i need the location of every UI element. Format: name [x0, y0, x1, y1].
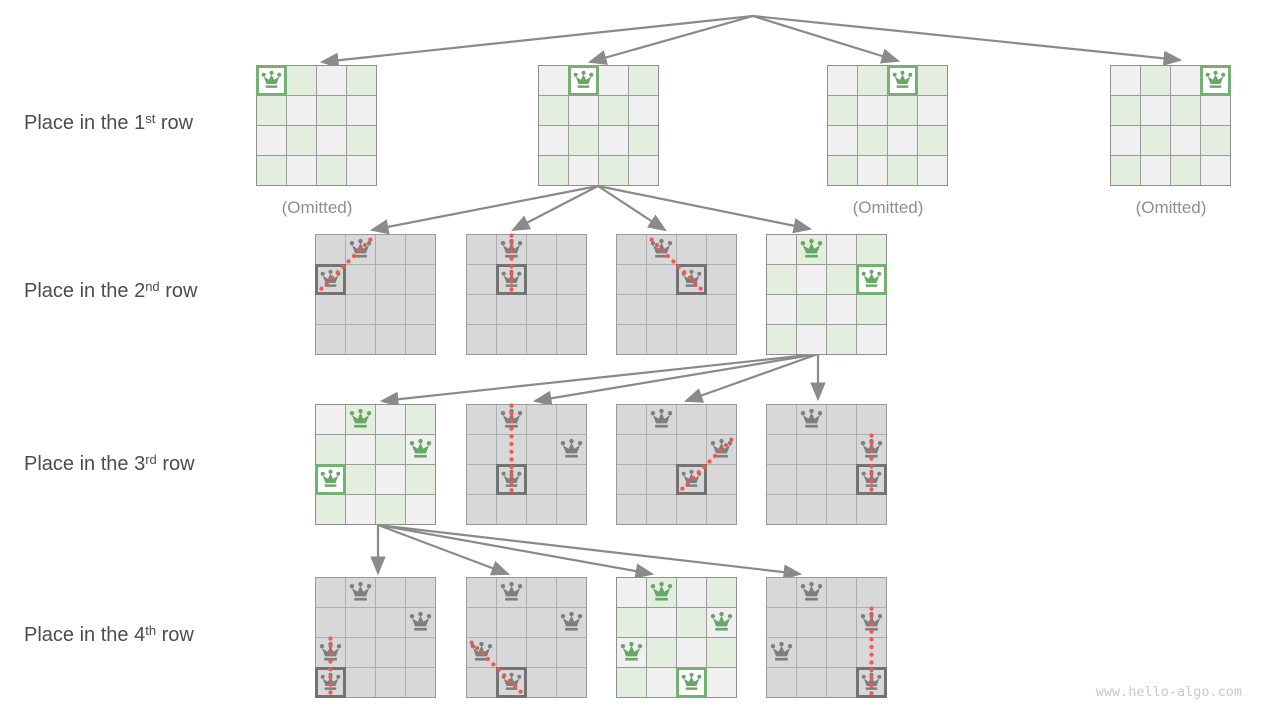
board-cell: [858, 66, 887, 95]
board-cell: [287, 96, 316, 125]
queen-placed: [346, 405, 375, 434]
board-cell: [828, 96, 857, 125]
board-cell: [527, 608, 556, 637]
board-cell: [406, 638, 435, 667]
board-cell: [287, 156, 316, 185]
row-label-3: Place in the 3rd row: [24, 453, 254, 476]
board-cell: [376, 325, 405, 354]
board-cell: [647, 668, 676, 697]
board-cell: [467, 435, 496, 464]
row-label-text: row: [160, 280, 198, 302]
chess-queen-icon: [320, 469, 341, 490]
board-cell: [1201, 126, 1230, 155]
board-cell: [827, 495, 856, 524]
omitted-label-2: (Omitted): [827, 198, 949, 218]
row-label-1: Place in the 1st row: [24, 112, 254, 135]
chess-queen-icon: [800, 408, 823, 431]
board-cell: [677, 578, 706, 607]
board-cell: [677, 638, 706, 667]
board-cell: [707, 465, 736, 494]
chess-queen-icon: [860, 611, 883, 634]
board-cell: [539, 126, 568, 155]
board-cell: [707, 495, 736, 524]
chess-queen-icon: [349, 238, 372, 261]
chess-queen-icon: [800, 238, 823, 261]
chess-queen-icon: [681, 672, 702, 693]
queen-placed: [797, 235, 826, 264]
board-cell: [257, 96, 286, 125]
board-cell: [629, 66, 658, 95]
chess-queen-icon: [650, 408, 673, 431]
board-cell: [467, 265, 496, 294]
board-level4-board1: [315, 577, 436, 698]
board-cell: [857, 495, 886, 524]
queen-placed: [497, 405, 526, 434]
board-cell: [539, 96, 568, 125]
board-cell: [918, 126, 947, 155]
board-level1-board2: [538, 65, 659, 186]
board-cell: [527, 405, 556, 434]
board-cell: [827, 668, 856, 697]
board-cell: [1201, 96, 1230, 125]
chess-queen-icon: [650, 238, 673, 261]
queen-placed: [467, 638, 496, 667]
board-cell: [677, 325, 706, 354]
board-cell: [888, 156, 917, 185]
board-cell: [617, 495, 646, 524]
board-cell: [707, 295, 736, 324]
board-cell: [827, 608, 856, 637]
queen-placed: [647, 235, 676, 264]
board-cell: [617, 608, 646, 637]
board-cell: [827, 265, 856, 294]
board-cell: [1171, 156, 1200, 185]
board-cell: [257, 126, 286, 155]
board-cell: [1171, 96, 1200, 125]
chess-queen-icon: [770, 641, 793, 664]
board-cell: [557, 295, 586, 324]
board-cell: [1111, 126, 1140, 155]
board-cell: [316, 608, 345, 637]
chess-queen-icon: [349, 408, 372, 431]
row-label-text: row: [157, 453, 195, 475]
board-cell: [527, 325, 556, 354]
chess-queen-icon: [500, 238, 523, 261]
board-cell: [497, 638, 526, 667]
board-cell: [406, 405, 435, 434]
board-level1-board3: [827, 65, 948, 186]
board-cell: [406, 265, 435, 294]
queen-placed: [557, 608, 586, 637]
board-cell: [376, 235, 405, 264]
board-cell: [317, 66, 346, 95]
board-cell: [647, 295, 676, 324]
board-cell: [257, 156, 286, 185]
board-cell: [406, 668, 435, 697]
board-cell: [569, 96, 598, 125]
board-cell: [767, 608, 796, 637]
board-cell: [467, 295, 496, 324]
board-cell: [316, 295, 345, 324]
board-level3-board1: [315, 404, 436, 525]
chess-queen-icon: [1205, 70, 1226, 91]
queen-placed: [346, 578, 375, 607]
queen-placed: [617, 638, 646, 667]
board-cell: [467, 495, 496, 524]
board-level4-board4: [766, 577, 887, 698]
chess-queen-icon: [861, 672, 882, 693]
board-cell: [677, 235, 706, 264]
board-cell: [1111, 96, 1140, 125]
board-cell: [376, 435, 405, 464]
board-cell: [467, 465, 496, 494]
board-cell: [857, 295, 886, 324]
board-cell: [376, 608, 405, 637]
ordinal-suffix: rd: [145, 452, 157, 467]
board-cell: [346, 435, 375, 464]
board-cell: [647, 265, 676, 294]
chess-queen-icon: [710, 611, 733, 634]
chess-queen-icon: [861, 469, 882, 490]
board-cell: [617, 668, 646, 697]
board-cell: [797, 638, 826, 667]
tree-edge-arrow: [513, 186, 598, 230]
chess-queen-icon: [500, 581, 523, 604]
board-cell: [557, 668, 586, 697]
board-cell: [857, 578, 886, 607]
board-cell: [569, 126, 598, 155]
queen-placed: [346, 235, 375, 264]
queen-attempt-conflict: [315, 264, 346, 295]
board-cell: [858, 126, 887, 155]
board-level2-board2: [466, 234, 587, 355]
board-cell: [797, 608, 826, 637]
queen-attempt-conflict: [676, 464, 707, 495]
queen-placed-new: [887, 65, 918, 96]
queen-attempt-conflict: [496, 464, 527, 495]
board-cell: [316, 578, 345, 607]
board-cell: [918, 96, 947, 125]
board-cell: [767, 405, 796, 434]
board-cell: [557, 578, 586, 607]
chess-queen-icon: [349, 581, 372, 604]
board-cell: [828, 156, 857, 185]
board-cell: [617, 265, 646, 294]
chess-queen-icon: [501, 469, 522, 490]
chess-queen-icon: [320, 269, 341, 290]
queen-placed: [707, 608, 736, 637]
board-cell: [346, 295, 375, 324]
board-cell: [797, 265, 826, 294]
row-label-text: Place in the 2: [24, 280, 145, 302]
board-cell: [827, 405, 856, 434]
board-cell: [1171, 126, 1200, 155]
board-cell: [347, 96, 376, 125]
queen-placed: [406, 435, 435, 464]
chess-queen-icon: [319, 641, 342, 664]
board-cell: [767, 495, 796, 524]
board-cell: [539, 156, 568, 185]
tree-edge-arrow: [753, 16, 1180, 60]
board-cell: [827, 325, 856, 354]
board-level1-board1: [256, 65, 377, 186]
board-cell: [647, 325, 676, 354]
queen-placed: [647, 578, 676, 607]
board-level2-board4: [766, 234, 887, 355]
board-cell: [707, 578, 736, 607]
board-cell: [406, 295, 435, 324]
queen-placed: [767, 638, 796, 667]
board-cell: [707, 325, 736, 354]
ordinal-suffix: nd: [145, 279, 159, 294]
board-cell: [347, 66, 376, 95]
chess-queen-icon: [620, 641, 643, 664]
chess-queen-icon: [500, 408, 523, 431]
board-cell: [316, 325, 345, 354]
board-cell: [858, 96, 887, 125]
board-cell: [857, 325, 886, 354]
chess-queen-icon: [470, 641, 493, 664]
board-cell: [467, 668, 496, 697]
omitted-label-3: (Omitted): [1110, 198, 1232, 218]
queen-placed: [857, 608, 886, 637]
row-label-text: row: [156, 624, 194, 646]
board-cell: [617, 578, 646, 607]
board-cell: [599, 96, 628, 125]
queen-placed-new: [256, 65, 287, 96]
board-cell: [827, 295, 856, 324]
board-cell: [599, 126, 628, 155]
board-cell: [317, 126, 346, 155]
board-cell: [797, 295, 826, 324]
chess-queen-icon: [320, 672, 341, 693]
board-level4-board2: [466, 577, 587, 698]
board-cell: [797, 435, 826, 464]
queen-attempt-conflict: [496, 667, 527, 698]
board-cell: [406, 578, 435, 607]
queen-attempt-conflict: [315, 667, 346, 698]
board-cell: [317, 156, 346, 185]
board-cell: [557, 235, 586, 264]
board-cell: [406, 325, 435, 354]
board-level1-board4: [1110, 65, 1231, 186]
board-cell: [527, 465, 556, 494]
board-cell: [767, 578, 796, 607]
board-level4-board3: [616, 577, 737, 698]
board-cell: [617, 405, 646, 434]
board-cell: [467, 405, 496, 434]
board-cell: [316, 405, 345, 434]
board-cell: [1201, 156, 1230, 185]
queen-placed: [557, 435, 586, 464]
board-cell: [617, 295, 646, 324]
board-cell: [767, 265, 796, 294]
n-queens-backtracking-diagram: Place in the 1st row Place in the 2nd ro…: [0, 0, 1280, 720]
board-cell: [527, 295, 556, 324]
board-cell: [617, 435, 646, 464]
chess-queen-icon: [650, 581, 673, 604]
board-cell: [918, 66, 947, 95]
queen-placed: [497, 235, 526, 264]
tree-edge-arrow: [590, 16, 753, 62]
board-cell: [316, 495, 345, 524]
board-cell: [539, 66, 568, 95]
board-cell: [406, 495, 435, 524]
board-cell: [1171, 66, 1200, 95]
chess-queen-icon: [860, 438, 883, 461]
board-cell: [857, 638, 886, 667]
queen-placed: [857, 435, 886, 464]
board-level3-board2: [466, 404, 587, 525]
queen-attempt-conflict: [856, 464, 887, 495]
board-cell: [1111, 156, 1140, 185]
board-cell: [629, 126, 658, 155]
board-cell: [346, 265, 375, 294]
board-level2-board1: [315, 234, 436, 355]
omitted-label-1: (Omitted): [256, 198, 378, 218]
board-cell: [1141, 156, 1170, 185]
board-cell: [629, 156, 658, 185]
queen-placed: [497, 578, 526, 607]
ordinal-suffix: st: [145, 111, 155, 126]
board-cell: [557, 405, 586, 434]
board-level2-board3: [616, 234, 737, 355]
board-cell: [467, 325, 496, 354]
queen-placed: [707, 435, 736, 464]
board-cell: [497, 608, 526, 637]
board-cell: [827, 578, 856, 607]
board-cell: [497, 495, 526, 524]
board-cell: [346, 465, 375, 494]
board-cell: [376, 405, 405, 434]
row-label-text: Place in the 3: [24, 453, 145, 475]
board-cell: [677, 295, 706, 324]
board-cell: [767, 668, 796, 697]
board-cell: [346, 325, 375, 354]
board-cell: [797, 325, 826, 354]
board-cell: [1141, 96, 1170, 125]
queen-attempt-conflict: [676, 264, 707, 295]
board-cell: [347, 126, 376, 155]
board-cell: [527, 578, 556, 607]
board-cell: [797, 495, 826, 524]
board-cell: [629, 96, 658, 125]
board-cell: [557, 325, 586, 354]
board-cell: [647, 495, 676, 524]
queen-placed-new: [1200, 65, 1231, 96]
board-cell: [617, 465, 646, 494]
board-cell: [827, 235, 856, 264]
board-cell: [888, 126, 917, 155]
board-cell: [827, 435, 856, 464]
board-cell: [569, 156, 598, 185]
board-cell: [376, 638, 405, 667]
row-label-2: Place in the 2nd row: [24, 280, 254, 303]
row-label-text: Place in the 4: [24, 624, 145, 646]
board-cell: [376, 495, 405, 524]
board-cell: [827, 465, 856, 494]
queen-placed: [316, 638, 345, 667]
board-cell: [677, 495, 706, 524]
board-cell: [767, 325, 796, 354]
chess-queen-icon: [261, 70, 282, 91]
board-cell: [346, 495, 375, 524]
board-cell: [857, 235, 886, 264]
queen-placed: [797, 405, 826, 434]
board-cell: [1141, 126, 1170, 155]
chess-queen-icon: [560, 438, 583, 461]
board-cell: [376, 465, 405, 494]
board-cell: [317, 96, 346, 125]
board-cell: [467, 578, 496, 607]
chess-queen-icon: [409, 438, 432, 461]
chess-queen-icon: [573, 70, 594, 91]
board-cell: [767, 465, 796, 494]
board-cell: [557, 638, 586, 667]
tree-edge-arrow: [378, 525, 652, 574]
board-cell: [527, 638, 556, 667]
board-cell: [617, 235, 646, 264]
queen-placed-new: [568, 65, 599, 96]
board-cell: [557, 495, 586, 524]
board-cell: [827, 638, 856, 667]
chess-queen-icon: [861, 269, 882, 290]
row-label-4: Place in the 4th row: [24, 624, 254, 647]
board-cell: [647, 465, 676, 494]
chess-queen-icon: [710, 438, 733, 461]
board-cell: [599, 156, 628, 185]
board-cell: [557, 465, 586, 494]
queen-placed: [406, 608, 435, 637]
board-cell: [677, 608, 706, 637]
queen-placed: [797, 578, 826, 607]
board-cell: [918, 156, 947, 185]
board-cell: [677, 435, 706, 464]
board-cell: [467, 235, 496, 264]
board-cell: [677, 405, 706, 434]
chess-queen-icon: [501, 269, 522, 290]
board-cell: [527, 668, 556, 697]
queen-placed-new: [856, 264, 887, 295]
board-cell: [617, 325, 646, 354]
row-label-text: Place in the 1: [24, 112, 145, 134]
board-cell: [287, 66, 316, 95]
board-cell: [527, 435, 556, 464]
board-level3-board3: [616, 404, 737, 525]
board-cell: [797, 465, 826, 494]
row-label-text: row: [155, 112, 193, 134]
board-cell: [376, 668, 405, 697]
board-cell: [888, 96, 917, 125]
chess-queen-icon: [501, 672, 522, 693]
board-cell: [346, 638, 375, 667]
board-cell: [497, 295, 526, 324]
board-cell: [707, 235, 736, 264]
queen-placed-new: [676, 667, 707, 698]
queen-placed: [647, 405, 676, 434]
board-cell: [527, 235, 556, 264]
board-cell: [767, 295, 796, 324]
board-cell: [376, 578, 405, 607]
board-cell: [527, 495, 556, 524]
board-cell: [647, 638, 676, 667]
board-cell: [467, 608, 496, 637]
board-cell: [707, 405, 736, 434]
tree-edge-arrow: [535, 354, 818, 401]
queen-attempt-conflict: [856, 667, 887, 698]
chess-queen-icon: [892, 70, 913, 91]
board-cell: [497, 435, 526, 464]
